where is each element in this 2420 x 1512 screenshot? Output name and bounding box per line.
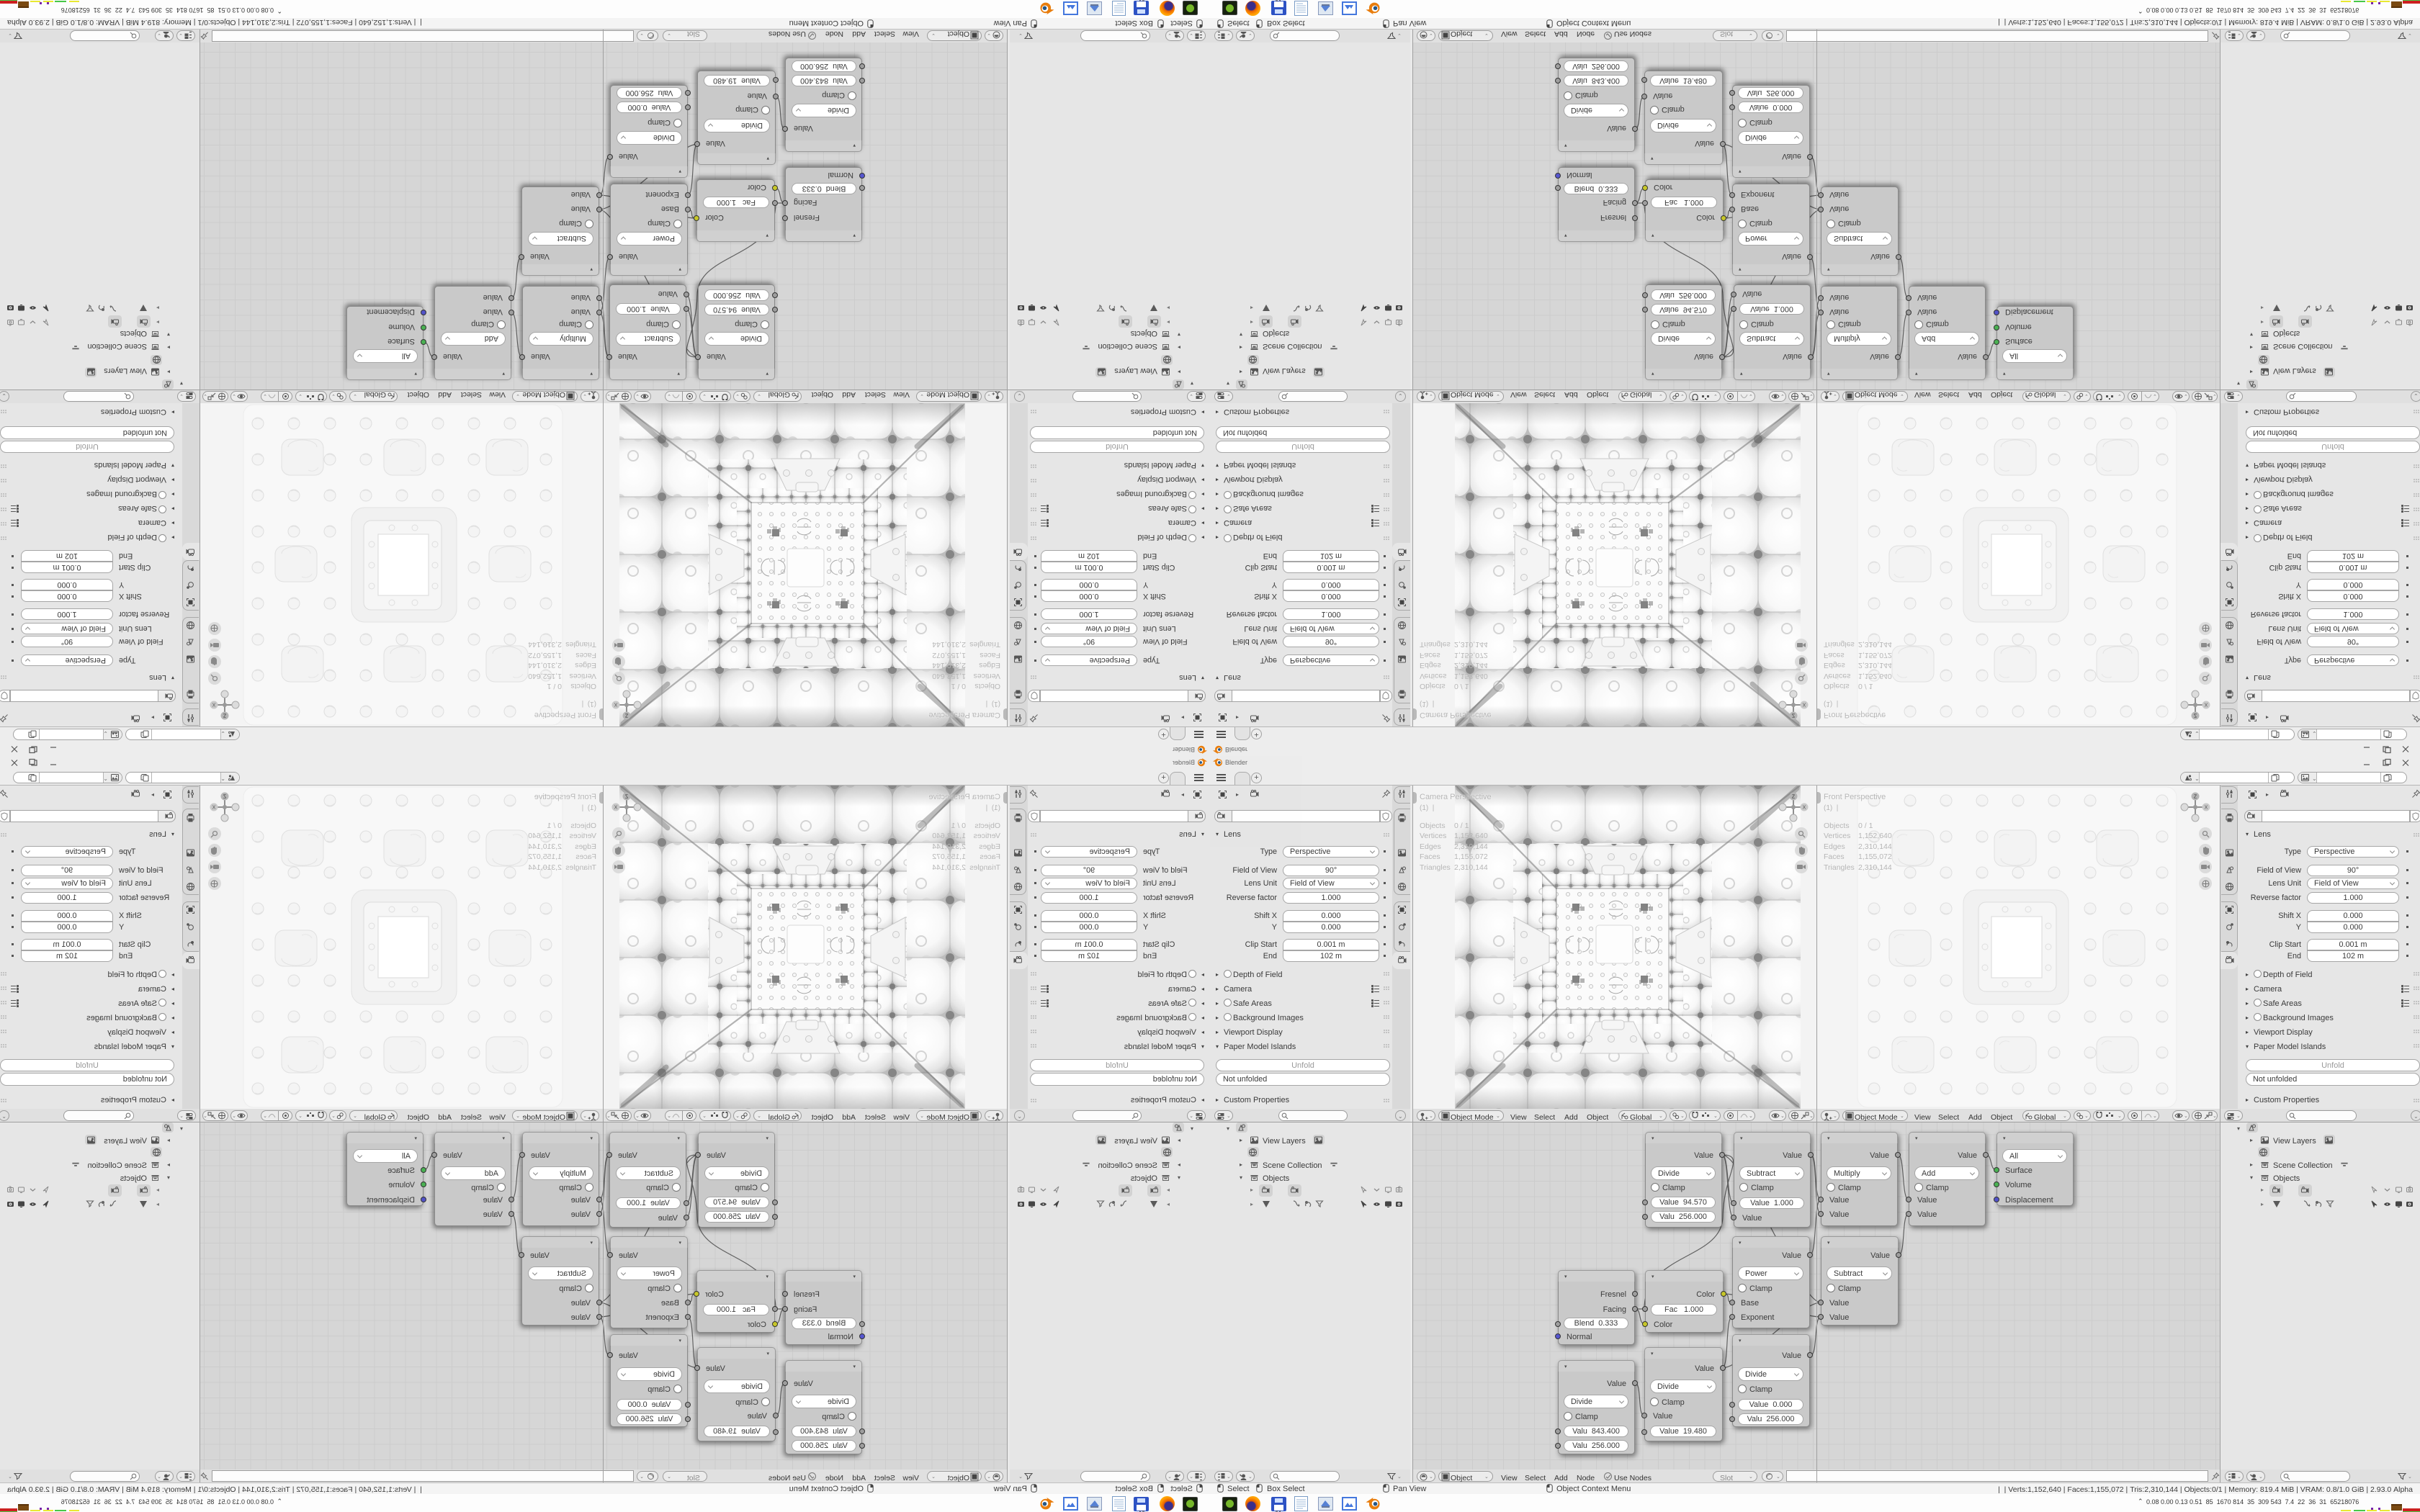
svg-text:Z: Z [1792,713,1796,718]
svg-text:Z: Z [223,713,226,718]
svg-text:Z: Z [1792,795,1796,800]
svg-text:X: X [1803,702,1806,707]
svg-text:X: X [2205,806,2208,811]
svg-text:Z: Z [624,713,628,718]
svg-text:Z: Z [2194,795,2197,800]
svg-text:X: X [2205,702,2208,707]
svg-text:X: X [1803,806,1806,811]
svg-text:X: X [212,702,215,707]
svg-text:Z: Z [223,795,226,800]
svg-text:Z: Z [624,795,628,800]
svg-text:Z: Z [2194,713,2197,718]
svg-text:X: X [212,806,215,811]
svg-text:X: X [614,702,617,707]
svg-text:X: X [614,806,617,811]
